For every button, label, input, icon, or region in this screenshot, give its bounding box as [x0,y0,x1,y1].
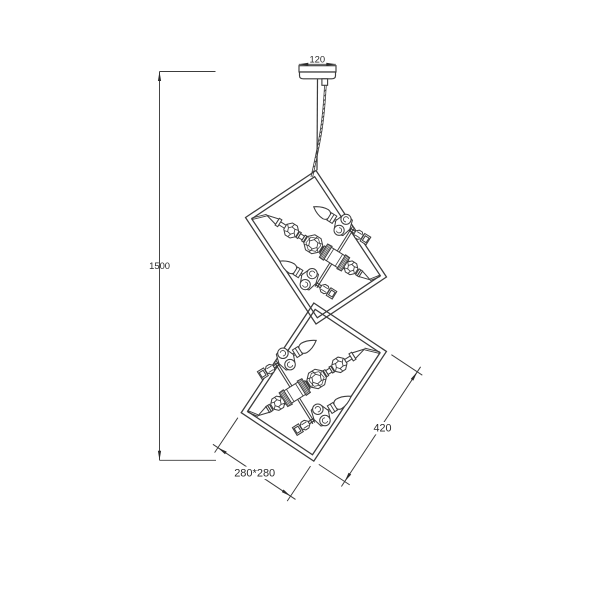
svg-text:280*280: 280*280 [234,467,275,479]
svg-text:120: 120 [309,53,325,64]
svg-text:420: 420 [373,423,391,435]
svg-text:1500: 1500 [149,260,170,271]
